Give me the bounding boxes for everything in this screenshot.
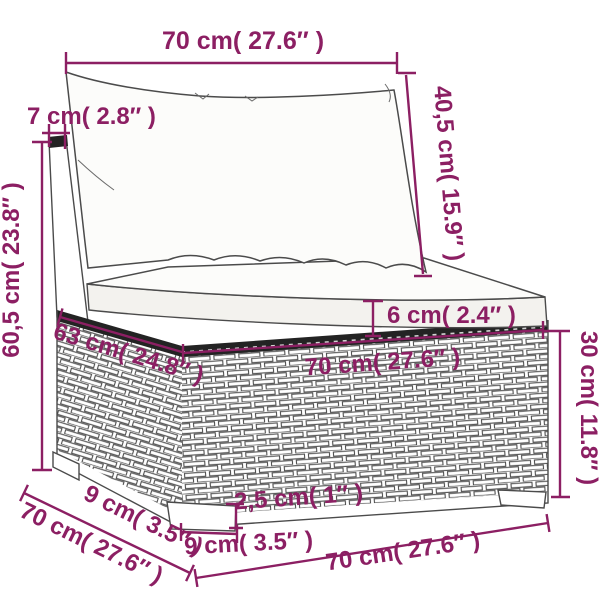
dim-label-width-top: 70 cm( 27.6″ ) — [162, 27, 324, 55]
sofa-dimension-diagram: 70 cm( 27.6″ ) 7 cm( 2.8″ ) 40,5 cm( 15.… — [0, 0, 600, 600]
front-right-foot — [498, 490, 546, 508]
back-cushion-body — [66, 72, 426, 272]
dim-width-top: 70 cm( 27.6″ ) — [66, 27, 397, 74]
dim-label-back-cushion-height: 40,5 cm( 15.9″ ) — [428, 85, 469, 262]
dim-label-seat-cushion-thickness: 6 cm( 2.4″ ) — [387, 302, 516, 329]
back-cushion — [66, 72, 426, 272]
dim-overall-height: 60,5 cm( 23.8″ ) — [0, 142, 52, 470]
dim-base-height: 30 cm( 11.8″ ) — [542, 331, 600, 497]
dim-label-overall-height: 60,5 cm( 23.8″ ) — [0, 182, 25, 358]
dim-label-width-bottom: 70 cm( 27.6″ ) — [324, 527, 482, 577]
dim-label-back-frame-thickness: 7 cm( 2.8″ ) — [27, 103, 156, 130]
diagram-canvas: 70 cm( 27.6″ ) 7 cm( 2.8″ ) 40,5 cm( 15.… — [0, 0, 600, 600]
dim-label-foot-front-width: 9 cm( 3.5″ ) — [184, 527, 314, 561]
dim-label-base-height: 30 cm( 11.8″ ) — [575, 331, 600, 485]
